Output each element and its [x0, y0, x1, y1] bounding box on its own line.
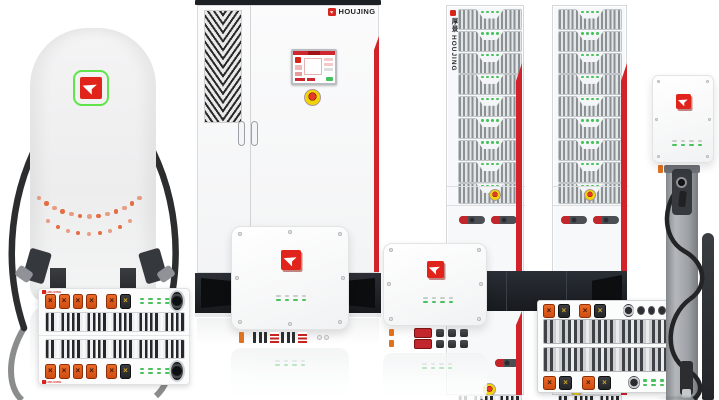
rack-power-module — [458, 9, 522, 30]
module-led-panel — [476, 31, 504, 41]
connector-dark: × — [594, 304, 606, 318]
charger-enclosure — [652, 75, 714, 163]
rack-power-module — [458, 162, 522, 183]
accent-stripe — [516, 311, 522, 395]
reflected-leds — [422, 363, 448, 369]
mounting-screw — [238, 320, 242, 324]
terminal — [287, 332, 290, 343]
rack-power-module — [558, 140, 622, 161]
charger-enclosure — [383, 243, 487, 326]
screen-display — [293, 51, 335, 83]
seam — [506, 271, 507, 311]
mounting-screw — [657, 155, 660, 158]
accent-stripe — [516, 63, 522, 273]
connector-orange: × — [59, 364, 70, 379]
led-dot — [87, 232, 91, 236]
connector-dark — [448, 340, 456, 348]
module-column — [458, 9, 522, 205]
screen-block — [295, 72, 302, 76]
mounting-screw — [389, 317, 393, 321]
module-led-panel — [576, 96, 604, 106]
led-indicator-grid — [672, 140, 698, 146]
cursor-arrow-logo-icon — [427, 261, 444, 278]
connector-red — [414, 328, 432, 338]
connector-orange: × — [59, 294, 70, 309]
mounting-screw — [477, 317, 481, 321]
reflection — [231, 348, 349, 400]
connector-orange: × — [106, 364, 117, 379]
rack-power-module — [458, 74, 522, 95]
cursor-arrow-logo-icon — [281, 250, 301, 270]
module-led-panel — [476, 96, 504, 106]
charger-enclosure — [231, 226, 349, 330]
led-dot — [46, 219, 50, 223]
led-dot — [128, 219, 132, 223]
shadow — [654, 395, 714, 400]
led-indicator-grid — [140, 368, 166, 374]
module-led-panel — [576, 162, 604, 172]
reflected-leds — [275, 360, 301, 366]
module-led-panel — [576, 74, 604, 84]
mounting-screw — [389, 248, 393, 252]
connector-dark — [436, 340, 444, 348]
round-connector — [637, 306, 645, 315]
ventilation-grille — [558, 395, 622, 400]
mounting-screw — [338, 320, 342, 324]
terminal-strip — [239, 331, 343, 344]
led-dot — [76, 231, 80, 235]
mounting-screw — [341, 276, 345, 280]
connector-dark — [460, 340, 468, 348]
cooling-fan-icon — [169, 290, 185, 312]
brand-logo: HOUJING — [328, 7, 375, 16]
dot — [324, 335, 329, 340]
connector-orange: × — [45, 364, 56, 379]
power-module-row: × × × × × × — [45, 363, 185, 379]
divider — [39, 335, 191, 336]
product-collage: 厚景 HOUJING — [0, 0, 719, 400]
accent-stripe — [621, 63, 627, 273]
module-led-panel — [476, 53, 504, 63]
rack-power-module — [558, 74, 622, 95]
door-handle — [238, 121, 245, 146]
screen-logo — [295, 57, 301, 63]
emergency-stop-icon — [584, 189, 596, 201]
module-led-panel — [576, 9, 604, 19]
rotary-breaker — [495, 359, 519, 367]
terminal — [264, 332, 267, 343]
led-dot — [118, 225, 122, 229]
wall-charger[interactable] — [383, 243, 487, 400]
connector-orange: × — [45, 294, 56, 309]
led-dot — [114, 209, 119, 214]
mounting-screw — [288, 230, 292, 234]
connector-dark: × — [558, 304, 570, 318]
led-dot — [66, 229, 70, 233]
rack-power-module — [458, 140, 522, 161]
screen-header-tab — [308, 51, 320, 55]
connector-orange: × — [543, 376, 556, 390]
mounting-screw — [477, 248, 481, 252]
led-indicator-grid — [276, 295, 302, 301]
rotary-breaker — [491, 216, 517, 224]
ventilation-grille — [45, 339, 185, 359]
led-dot — [96, 214, 101, 219]
power-module-unit[interactable]: HOUJING × × × × × × × × × × × × HOU — [38, 288, 190, 385]
reflection — [383, 353, 487, 400]
mounting-screw — [338, 232, 342, 236]
brand-name: HOUJING — [339, 7, 376, 16]
led-indicator-grid — [423, 297, 449, 303]
connector-red — [414, 339, 432, 349]
terminal — [259, 332, 262, 343]
led-dot — [108, 229, 112, 233]
round-connector — [628, 376, 640, 389]
cursor-arrow-logo-icon — [676, 94, 691, 109]
emergency-stop-icon — [489, 189, 501, 201]
led-indicator-grid — [140, 298, 166, 304]
mounting-screw — [238, 232, 242, 236]
module-led-panel — [476, 162, 504, 172]
led-dot — [60, 209, 65, 214]
connector-orange: × — [73, 364, 84, 379]
screen-label — [324, 68, 333, 71]
module-led-panel — [476, 118, 504, 128]
divider — [447, 205, 525, 206]
connector-orange: × — [73, 294, 84, 309]
mounting-screw — [479, 282, 483, 286]
rack-power-module — [558, 31, 622, 52]
grille-right-half — [223, 11, 241, 122]
led-dot — [69, 212, 74, 217]
led-dot — [87, 214, 92, 219]
connector-dark: × — [120, 294, 131, 309]
terminal — [281, 332, 284, 343]
module-led-panel — [476, 74, 504, 84]
divider — [553, 205, 628, 206]
led-dot — [130, 201, 135, 206]
mounting-screw — [288, 322, 292, 326]
screen-button — [307, 78, 315, 81]
connector-dark: × — [598, 376, 611, 390]
brand-logo-icon — [450, 10, 456, 16]
heatsink-fins — [270, 332, 279, 343]
connector-dark — [448, 329, 456, 337]
terminal — [292, 332, 295, 343]
rack-power-module — [558, 9, 622, 30]
led-dot — [105, 212, 110, 217]
brand-cn: 厚景 — [449, 18, 457, 33]
module-led-panel — [576, 53, 604, 63]
led-dot — [37, 196, 42, 201]
grille-left-half — [205, 11, 223, 122]
connector-orange: × — [582, 376, 595, 390]
mini-brand-logo: HOUJING — [42, 380, 62, 384]
module-column — [558, 9, 622, 205]
screen-chart-area — [304, 58, 322, 75]
rotary-breaker — [561, 216, 587, 224]
rack-power-module — [458, 118, 522, 139]
mounting-screw — [708, 118, 711, 121]
module-led-panel — [576, 118, 604, 128]
power-module-row: × × × × × × — [45, 293, 185, 309]
brand-name: HOUJING — [449, 35, 457, 72]
wall-charger[interactable] — [231, 226, 349, 400]
accent-stripe — [374, 36, 379, 272]
rack-power-module — [558, 162, 622, 183]
screen-button — [295, 78, 305, 81]
rack-power-module — [458, 31, 522, 52]
screen-label — [324, 63, 333, 66]
rotary-breaker — [459, 216, 485, 224]
mounting-screw — [655, 118, 658, 121]
connector-orange: × — [106, 294, 117, 309]
ventilation-grille — [45, 312, 185, 332]
screen-ok-button — [326, 77, 333, 81]
terminal — [253, 332, 256, 343]
module-led-panel — [476, 9, 504, 19]
rack-power-module — [558, 96, 622, 117]
rotary-breaker — [593, 216, 619, 224]
connector-dark — [460, 329, 468, 337]
connector-dark — [436, 329, 444, 337]
rack-power-module — [458, 53, 522, 74]
led-dot — [98, 231, 102, 235]
led-dot — [137, 196, 142, 201]
connector-dark: × — [559, 376, 572, 390]
terminal-strip — [389, 328, 481, 337]
rack-power-module — [558, 53, 622, 74]
led-dot — [78, 214, 83, 219]
screen-label — [324, 58, 333, 61]
rack-power-module — [558, 118, 622, 139]
brand-logo-icon — [42, 380, 46, 384]
divider — [447, 186, 525, 187]
cooling-fan-icon — [169, 360, 185, 382]
brand-name: HOUJING — [47, 380, 62, 384]
brand-logo-icon — [328, 8, 336, 16]
led-dot — [44, 201, 49, 206]
terminal-strip — [389, 339, 481, 348]
emergency-stop-icon — [304, 89, 321, 106]
mounting-screw — [706, 155, 709, 158]
mounting-screw — [387, 282, 391, 286]
hmi-screen — [291, 49, 337, 85]
door-handle — [251, 121, 258, 146]
connector-orange: × — [86, 364, 97, 379]
connector-orange — [389, 340, 394, 347]
module-led-panel — [576, 140, 604, 150]
brand-vertical: 厚景 HOUJING — [449, 10, 457, 80]
dot — [317, 335, 322, 340]
divider — [553, 186, 628, 187]
connector-orange — [389, 329, 394, 336]
module-led-panel — [576, 31, 604, 41]
heatsink-fins — [298, 332, 307, 343]
connector-dark: × — [120, 364, 131, 379]
screen-block — [295, 65, 302, 70]
connector-orange: × — [579, 304, 591, 318]
led-dot — [52, 206, 57, 211]
led-dot — [122, 206, 127, 211]
mounting-screw — [706, 80, 709, 83]
mounting-screw — [235, 276, 239, 280]
mounting-screw — [657, 80, 660, 83]
module-led-panel — [476, 140, 504, 150]
pedestal-wall-charger[interactable] — [650, 73, 719, 400]
connector-orange: × — [543, 304, 555, 318]
rack-power-module — [458, 96, 522, 117]
charging-gun-icon — [676, 177, 687, 188]
round-connector — [623, 304, 634, 317]
connector-orange: × — [86, 294, 97, 309]
connector-orange — [239, 332, 244, 343]
led-dot — [56, 225, 60, 229]
ventilation-grille — [204, 10, 242, 123]
